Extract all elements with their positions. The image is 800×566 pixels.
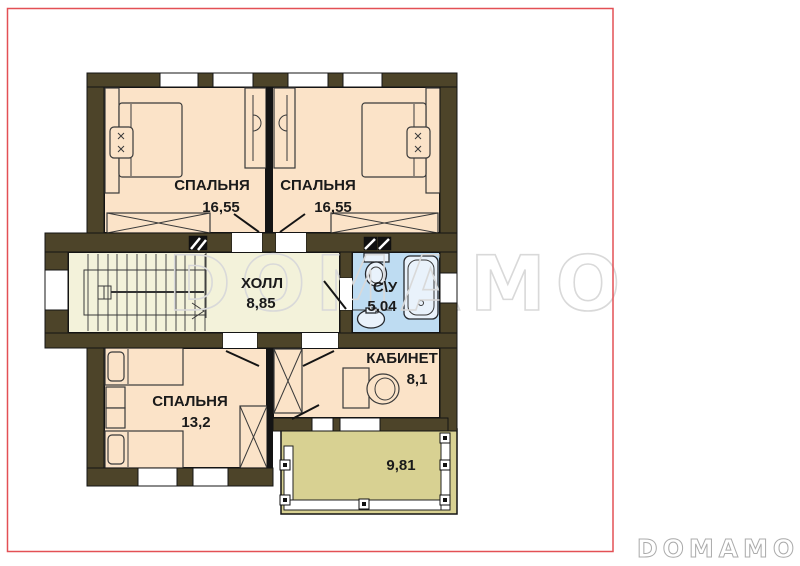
pillow — [108, 352, 124, 381]
room-area-hall: 8,85 — [246, 295, 275, 312]
door-opening — [223, 333, 257, 348]
room-area-bedroom-top-left: 16,55 — [202, 199, 240, 216]
door-opening — [276, 233, 306, 252]
brand-logo: DOMAMO — [637, 534, 799, 563]
room-label-bedroom-top-left: СПАЛЬНЯ — [174, 177, 250, 194]
room-area-office: 8,1 — [407, 371, 428, 388]
nightstand — [106, 408, 125, 428]
window — [213, 73, 253, 87]
room-label-hall: ХОЛЛ — [241, 275, 283, 292]
room-area-bathroom: 5,04 — [367, 298, 397, 315]
floor-plan-canvas: DOMAMO — [0, 0, 800, 566]
window — [138, 468, 177, 486]
room-label-bedroom-bottom: СПАЛЬНЯ — [152, 393, 228, 410]
window — [440, 273, 457, 303]
nightstand — [106, 387, 125, 408]
closet — [274, 88, 295, 168]
nightstand — [407, 127, 430, 158]
room-label-bedroom-top-right: СПАЛЬНЯ — [280, 177, 356, 194]
door-opening — [302, 333, 338, 348]
desk — [343, 368, 369, 408]
closet — [245, 88, 266, 168]
window — [343, 73, 382, 87]
window — [288, 73, 328, 87]
nightstand — [110, 127, 133, 158]
balcony-door-opening — [312, 418, 333, 431]
window — [193, 468, 228, 486]
window — [45, 270, 68, 310]
room-label-bathroom: С\У — [373, 279, 398, 296]
door-opening — [232, 233, 262, 252]
window — [160, 73, 198, 87]
room-label-office: КАБИНЕТ — [366, 350, 438, 367]
floor-plan-page: DOMAMO — [0, 0, 800, 566]
pillow — [108, 435, 124, 464]
room-area-bedroom-bottom: 13,2 — [181, 414, 210, 431]
room-area-bedroom-top-right: 16,55 — [314, 199, 352, 216]
balcony — [280, 429, 457, 514]
partition-wall — [266, 87, 272, 233]
balcony-door-opening — [340, 418, 380, 431]
partition-wall — [267, 348, 273, 468]
room-area-balcony: 9,81 — [386, 457, 415, 474]
